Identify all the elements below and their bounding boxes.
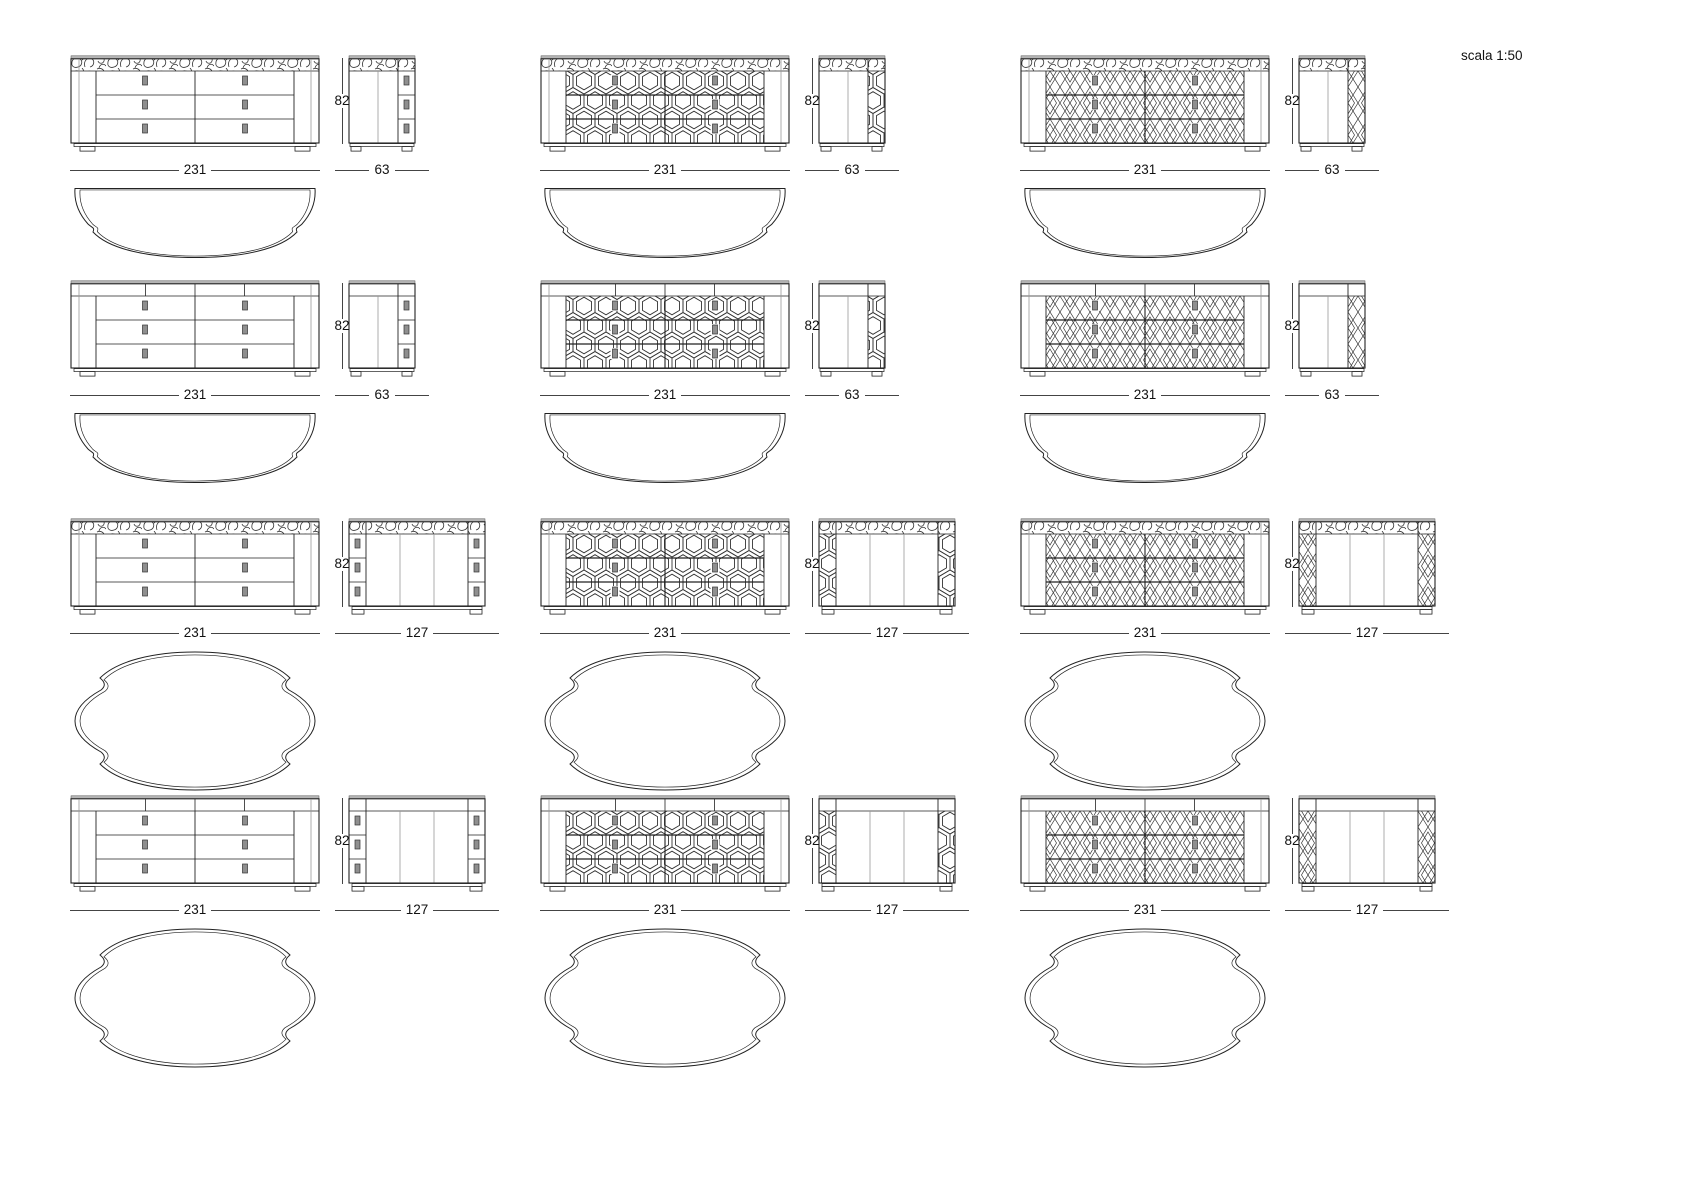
side-elevation xyxy=(818,518,956,615)
side-elevation xyxy=(348,795,486,892)
depth-dim-diamond-lattice-front-decorated-top-deep: 127 xyxy=(1285,626,1449,640)
front-view-hexagon-lattice-front-plain-top-deep xyxy=(540,795,790,892)
depth-dim-plain-drawer-front-decorated-top-shallow: 63 xyxy=(335,163,429,177)
front-view-plain-drawer-front-decorated-top-deep xyxy=(70,518,320,615)
front-view-diamond-lattice-front-plain-top-shallow xyxy=(1020,280,1270,377)
plan-view-hexagon-lattice-front-decorated-top-deep xyxy=(541,650,789,792)
front-elevation xyxy=(70,518,320,615)
depth-dim-hexagon-lattice-front-plain-top-deep: 127 xyxy=(805,903,969,917)
height-dim-plain-drawer-front-decorated-top-deep-label: 82 xyxy=(329,557,354,571)
side-view-hexagon-lattice-front-decorated-top-deep xyxy=(818,518,956,615)
depth-dim-plain-drawer-front-decorated-top-deep: 127 xyxy=(335,626,499,640)
width-dim-hexagon-lattice-front-decorated-top-shallow: 231 xyxy=(540,163,790,177)
height-dim-diamond-lattice-front-decorated-top-shallow: 82 xyxy=(1277,58,1307,144)
width-dim-hexagon-lattice-front-plain-top-deep: 231 xyxy=(540,903,790,917)
height-dim-hexagon-lattice-front-decorated-top-deep: 82 xyxy=(797,521,827,607)
depth-dim-hexagon-lattice-front-decorated-top-shallow-label: 63 xyxy=(839,163,864,177)
plan-view xyxy=(541,412,789,485)
plan-view-hexagon-lattice-front-decorated-top-shallow xyxy=(541,187,789,260)
front-view-plain-drawer-front-plain-top-deep xyxy=(70,795,320,892)
width-dim-hexagon-lattice-front-plain-top-deep-label: 231 xyxy=(649,903,682,917)
depth-dim-hexagon-lattice-front-decorated-top-deep: 127 xyxy=(805,626,969,640)
side-view-plain-drawer-front-plain-top-deep xyxy=(348,795,486,892)
depth-dim-diamond-lattice-front-plain-top-shallow-label: 63 xyxy=(1319,388,1344,402)
front-view-diamond-lattice-front-plain-top-deep xyxy=(1020,795,1270,892)
height-dim-diamond-lattice-front-plain-top-shallow-label: 82 xyxy=(1279,319,1304,333)
depth-dim-hexagon-lattice-front-plain-top-deep-label: 127 xyxy=(871,903,904,917)
height-dim-diamond-lattice-front-plain-top-deep-label: 82 xyxy=(1279,834,1304,848)
side-view-diamond-lattice-front-decorated-top-shallow xyxy=(1298,55,1366,152)
plan-view xyxy=(71,927,319,1069)
front-view-hexagon-lattice-front-decorated-top-deep xyxy=(540,518,790,615)
depth-dim-plain-drawer-front-plain-top-deep: 127 xyxy=(335,903,499,917)
side-elevation xyxy=(1298,795,1436,892)
width-dim-hexagon-lattice-front-plain-top-shallow: 231 xyxy=(540,388,790,402)
height-dim-plain-drawer-front-plain-top-deep-label: 82 xyxy=(329,834,354,848)
width-dim-plain-drawer-front-decorated-top-deep: 231 xyxy=(70,626,320,640)
width-dim-diamond-lattice-front-decorated-top-deep-label: 231 xyxy=(1129,626,1162,640)
width-dim-diamond-lattice-front-plain-top-shallow: 231 xyxy=(1020,388,1270,402)
front-elevation xyxy=(540,795,790,892)
scale-label: scala 1:50 xyxy=(1461,48,1523,63)
front-elevation xyxy=(70,795,320,892)
height-dim-diamond-lattice-front-plain-top-shallow: 82 xyxy=(1277,283,1307,369)
front-elevation xyxy=(1020,518,1270,615)
height-dim-diamond-lattice-front-decorated-top-shallow-label: 82 xyxy=(1279,94,1304,108)
side-view-hexagon-lattice-front-plain-top-shallow xyxy=(818,280,886,377)
plan-view xyxy=(541,927,789,1069)
height-dim-diamond-lattice-front-decorated-top-deep: 82 xyxy=(1277,521,1307,607)
height-dim-hexagon-lattice-front-decorated-top-deep-label: 82 xyxy=(799,557,824,571)
height-dim-plain-drawer-front-decorated-top-deep: 82 xyxy=(327,521,357,607)
depth-dim-hexagon-lattice-front-decorated-top-deep-label: 127 xyxy=(871,626,904,640)
depth-dim-plain-drawer-front-decorated-top-deep-label: 127 xyxy=(401,626,434,640)
side-view-diamond-lattice-front-plain-top-shallow xyxy=(1298,280,1366,377)
front-elevation xyxy=(1020,55,1270,152)
width-dim-diamond-lattice-front-plain-top-shallow-label: 231 xyxy=(1129,388,1162,402)
depth-dim-diamond-lattice-front-plain-top-deep: 127 xyxy=(1285,903,1449,917)
depth-dim-diamond-lattice-front-plain-top-shallow: 63 xyxy=(1285,388,1379,402)
height-dim-plain-drawer-front-plain-top-shallow: 82 xyxy=(327,283,357,369)
side-view-plain-drawer-front-plain-top-shallow xyxy=(348,280,416,377)
side-elevation xyxy=(818,795,956,892)
width-dim-hexagon-lattice-front-plain-top-shallow-label: 231 xyxy=(649,388,682,402)
plan-view-diamond-lattice-front-decorated-top-deep xyxy=(1021,650,1269,792)
depth-dim-diamond-lattice-front-decorated-top-shallow: 63 xyxy=(1285,163,1379,177)
front-view-hexagon-lattice-front-decorated-top-shallow xyxy=(540,55,790,152)
front-view-diamond-lattice-front-decorated-top-deep xyxy=(1020,518,1270,615)
width-dim-plain-drawer-front-plain-top-shallow-label: 231 xyxy=(179,388,212,402)
height-dim-hexagon-lattice-front-plain-top-shallow-label: 82 xyxy=(799,319,824,333)
width-dim-plain-drawer-front-decorated-top-shallow: 231 xyxy=(70,163,320,177)
plan-view xyxy=(71,187,319,260)
side-view-diamond-lattice-front-plain-top-deep xyxy=(1298,795,1436,892)
height-dim-diamond-lattice-front-plain-top-deep: 82 xyxy=(1277,798,1307,884)
side-view-plain-drawer-front-decorated-top-deep xyxy=(348,518,486,615)
side-elevation xyxy=(1298,55,1366,152)
width-dim-plain-drawer-front-plain-top-deep-label: 231 xyxy=(179,903,212,917)
width-dim-diamond-lattice-front-decorated-top-deep: 231 xyxy=(1020,626,1270,640)
plan-view-diamond-lattice-front-decorated-top-shallow xyxy=(1021,187,1269,260)
width-dim-diamond-lattice-front-decorated-top-shallow: 231 xyxy=(1020,163,1270,177)
depth-dim-hexagon-lattice-front-plain-top-shallow-label: 63 xyxy=(839,388,864,402)
width-dim-plain-drawer-front-plain-top-deep: 231 xyxy=(70,903,320,917)
plan-view xyxy=(1021,927,1269,1069)
height-dim-hexagon-lattice-front-plain-top-deep-label: 82 xyxy=(799,834,824,848)
front-view-plain-drawer-front-plain-top-shallow xyxy=(70,280,320,377)
width-dim-hexagon-lattice-front-decorated-top-deep-label: 231 xyxy=(649,626,682,640)
front-elevation xyxy=(540,280,790,377)
side-elevation xyxy=(818,55,886,152)
front-view-plain-drawer-front-decorated-top-shallow xyxy=(70,55,320,152)
plan-view xyxy=(541,650,789,792)
height-dim-hexagon-lattice-front-plain-top-shallow: 82 xyxy=(797,283,827,369)
plan-view xyxy=(71,412,319,485)
plan-view-hexagon-lattice-front-plain-top-shallow xyxy=(541,412,789,485)
plan-view xyxy=(1021,187,1269,260)
front-elevation xyxy=(1020,795,1270,892)
depth-dim-plain-drawer-front-plain-top-shallow-label: 63 xyxy=(369,388,394,402)
width-dim-diamond-lattice-front-plain-top-deep: 231 xyxy=(1020,903,1270,917)
side-elevation xyxy=(348,280,416,377)
depth-dim-hexagon-lattice-front-decorated-top-shallow: 63 xyxy=(805,163,899,177)
height-dim-hexagon-lattice-front-plain-top-deep: 82 xyxy=(797,798,827,884)
width-dim-plain-drawer-front-decorated-top-deep-label: 231 xyxy=(179,626,212,640)
plan-view-diamond-lattice-front-plain-top-shallow xyxy=(1021,412,1269,485)
side-view-hexagon-lattice-front-decorated-top-shallow xyxy=(818,55,886,152)
plan-view-plain-drawer-front-plain-top-deep xyxy=(71,927,319,1069)
height-dim-plain-drawer-front-decorated-top-shallow: 82 xyxy=(327,58,357,144)
plan-view xyxy=(71,650,319,792)
plan-view xyxy=(541,187,789,260)
plan-view-plain-drawer-front-decorated-top-deep xyxy=(71,650,319,792)
width-dim-plain-drawer-front-decorated-top-shallow-label: 231 xyxy=(179,163,212,177)
front-elevation xyxy=(70,280,320,377)
depth-dim-plain-drawer-front-decorated-top-shallow-label: 63 xyxy=(369,163,394,177)
front-elevation xyxy=(70,55,320,152)
width-dim-hexagon-lattice-front-decorated-top-shallow-label: 231 xyxy=(649,163,682,177)
side-elevation xyxy=(348,55,416,152)
front-elevation xyxy=(540,55,790,152)
plan-view-plain-drawer-front-decorated-top-shallow xyxy=(71,187,319,260)
depth-dim-diamond-lattice-front-plain-top-deep-label: 127 xyxy=(1351,903,1384,917)
height-dim-plain-drawer-front-decorated-top-shallow-label: 82 xyxy=(329,94,354,108)
front-view-hexagon-lattice-front-plain-top-shallow xyxy=(540,280,790,377)
plan-view-hexagon-lattice-front-plain-top-deep xyxy=(541,927,789,1069)
height-dim-hexagon-lattice-front-decorated-top-shallow: 82 xyxy=(797,58,827,144)
height-dim-plain-drawer-front-plain-top-shallow-label: 82 xyxy=(329,319,354,333)
side-elevation xyxy=(1298,280,1366,377)
front-elevation xyxy=(1020,280,1270,377)
plan-view-diamond-lattice-front-plain-top-deep xyxy=(1021,927,1269,1069)
depth-dim-plain-drawer-front-plain-top-deep-label: 127 xyxy=(401,903,434,917)
width-dim-hexagon-lattice-front-decorated-top-deep: 231 xyxy=(540,626,790,640)
side-elevation xyxy=(818,280,886,377)
plan-view xyxy=(1021,412,1269,485)
depth-dim-plain-drawer-front-plain-top-shallow: 63 xyxy=(335,388,429,402)
plan-view-plain-drawer-front-plain-top-shallow xyxy=(71,412,319,485)
technical-drawing-sheet: scala 1:50 82231638223163822316382231638… xyxy=(0,0,1698,1200)
front-view-diamond-lattice-front-decorated-top-shallow xyxy=(1020,55,1270,152)
height-dim-diamond-lattice-front-decorated-top-deep-label: 82 xyxy=(1279,557,1304,571)
side-view-hexagon-lattice-front-plain-top-deep xyxy=(818,795,956,892)
side-view-diamond-lattice-front-decorated-top-deep xyxy=(1298,518,1436,615)
width-dim-diamond-lattice-front-decorated-top-shallow-label: 231 xyxy=(1129,163,1162,177)
depth-dim-diamond-lattice-front-decorated-top-shallow-label: 63 xyxy=(1319,163,1344,177)
side-elevation xyxy=(1298,518,1436,615)
side-elevation xyxy=(348,518,486,615)
height-dim-hexagon-lattice-front-decorated-top-shallow-label: 82 xyxy=(799,94,824,108)
depth-dim-hexagon-lattice-front-plain-top-shallow: 63 xyxy=(805,388,899,402)
front-elevation xyxy=(540,518,790,615)
side-view-plain-drawer-front-decorated-top-shallow xyxy=(348,55,416,152)
depth-dim-diamond-lattice-front-decorated-top-deep-label: 127 xyxy=(1351,626,1384,640)
width-dim-diamond-lattice-front-plain-top-deep-label: 231 xyxy=(1129,903,1162,917)
height-dim-plain-drawer-front-plain-top-deep: 82 xyxy=(327,798,357,884)
plan-view xyxy=(1021,650,1269,792)
width-dim-plain-drawer-front-plain-top-shallow: 231 xyxy=(70,388,320,402)
